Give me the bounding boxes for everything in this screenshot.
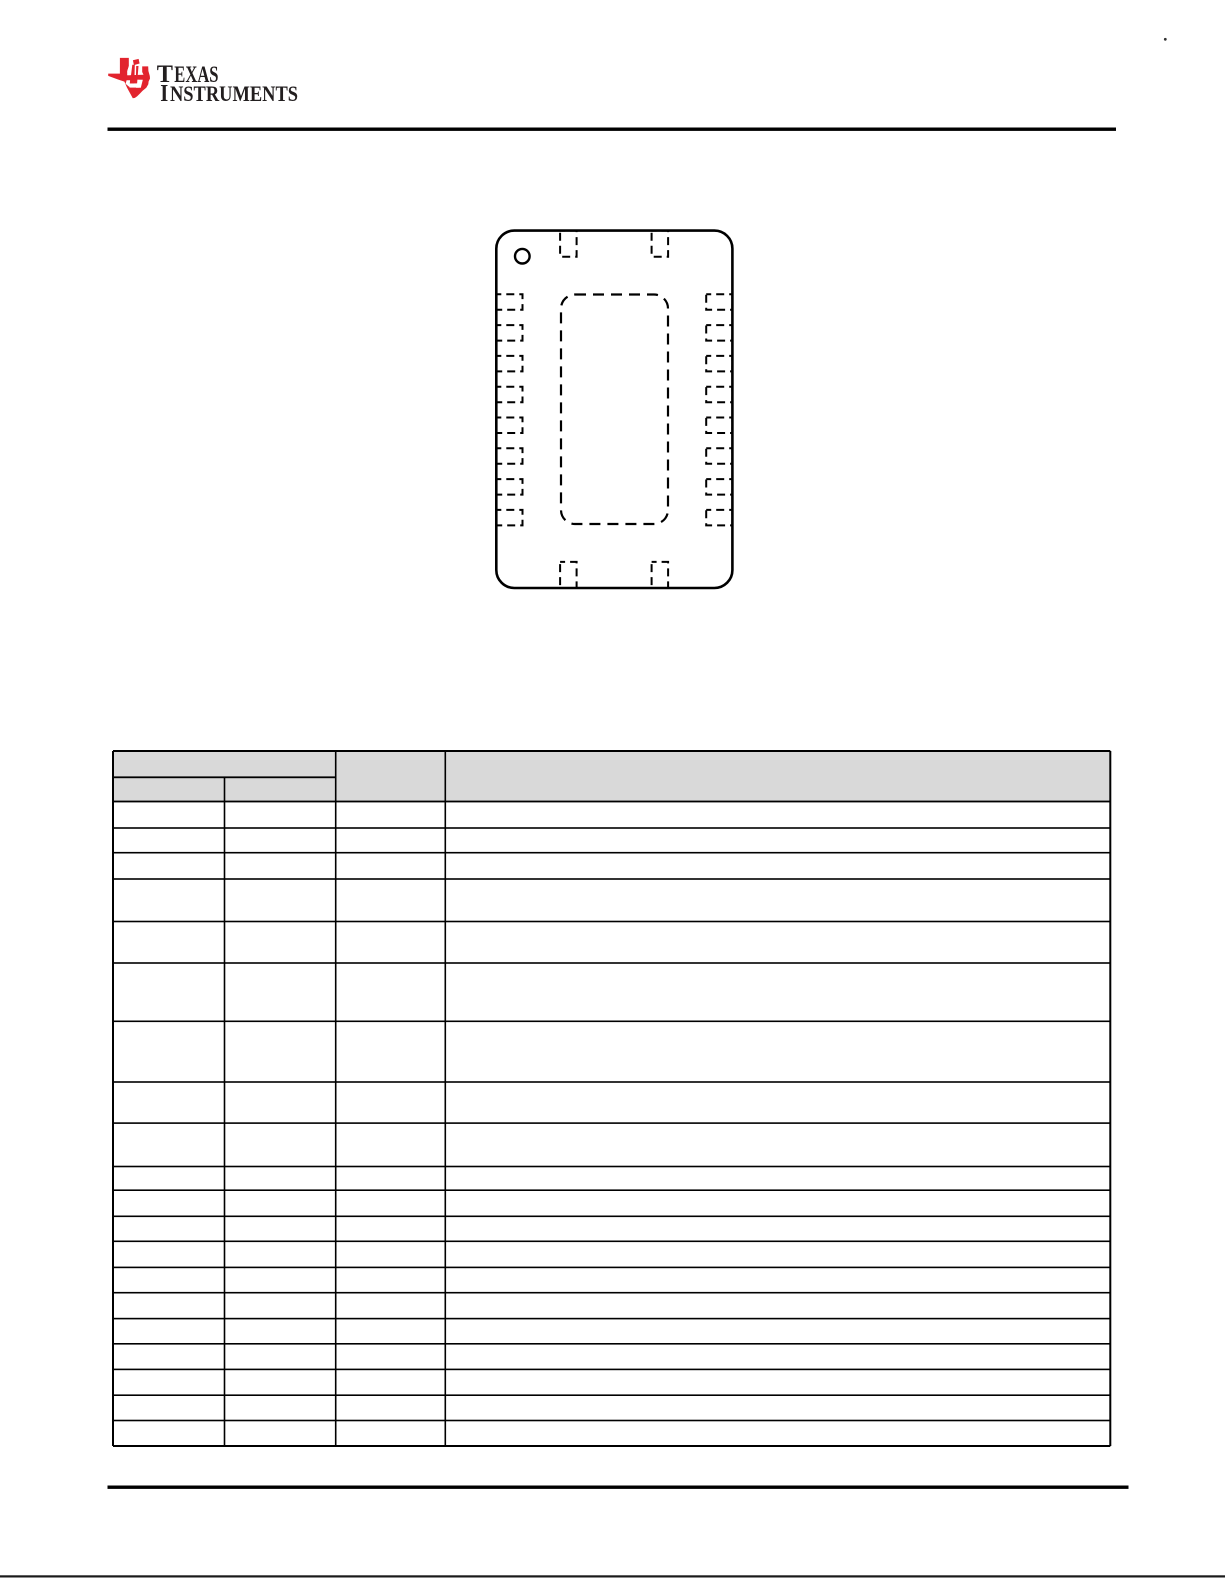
svg-text:NSTRUMENTS: NSTRUMENTS: [170, 82, 298, 106]
svg-text:I: I: [160, 80, 168, 107]
